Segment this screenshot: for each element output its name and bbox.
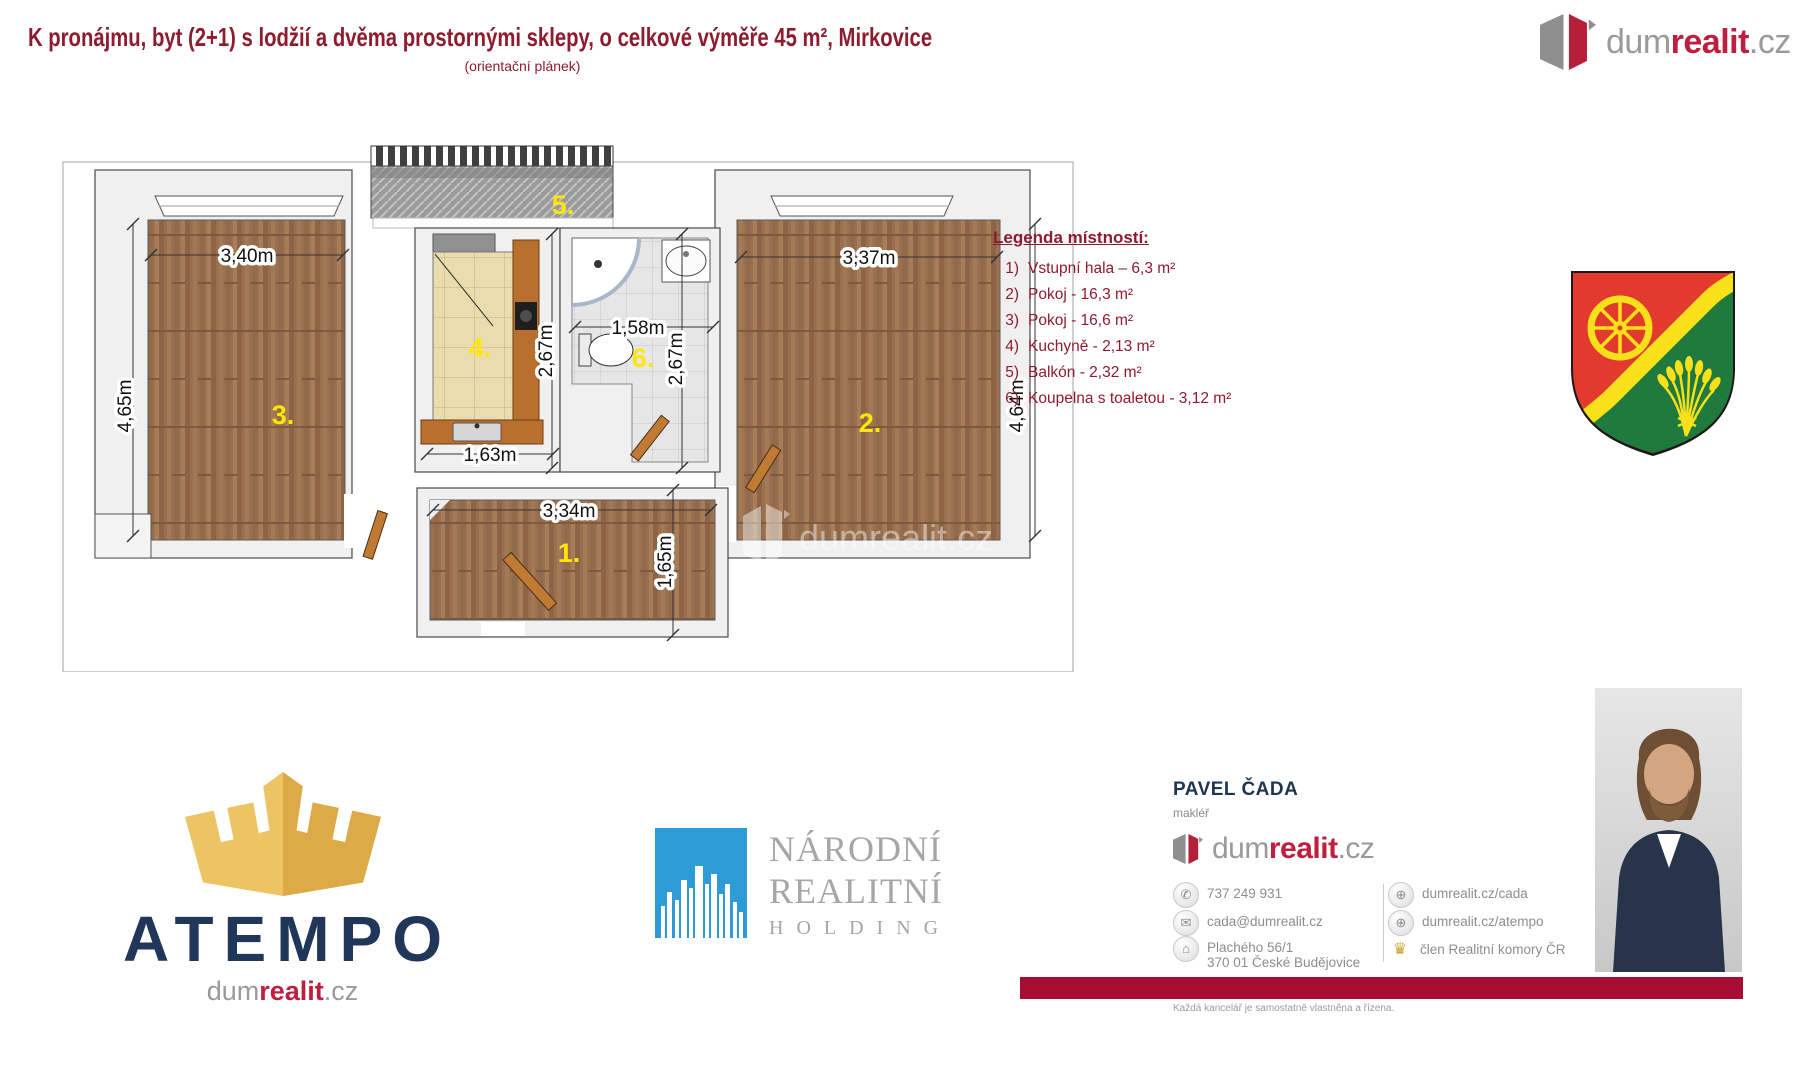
legend-item-6: 6)Koupelna s toaletou - 3,12 m² bbox=[993, 390, 1231, 408]
legend: Legenda místností: 1)Vstupní hala – 6,3 … bbox=[993, 228, 1231, 416]
contact-email[interactable]: ✉ cada@dumrealit.cz bbox=[1173, 910, 1323, 936]
floor-plan: 3,40m 4,65m 3,37m 4,64m bbox=[55, 138, 1075, 672]
dim-room3-width: 3,40m bbox=[221, 246, 274, 267]
page-subtitle: (orientační plánek) bbox=[0, 58, 1045, 74]
room3-floor bbox=[148, 220, 345, 540]
contact-web-profile[interactable]: ⊕ dumrealit.cz/cada bbox=[1388, 882, 1528, 908]
room-label-bathroom: 6. bbox=[632, 343, 655, 373]
mirkovice-coat-of-arms bbox=[1568, 268, 1738, 458]
contact-web-office[interactable]: ⊕ dumrealit.cz/atempo bbox=[1388, 910, 1544, 936]
atempo-wordmark: ATEMPO bbox=[100, 902, 475, 976]
room-3: 3,40m 4,65m bbox=[95, 170, 353, 558]
room3-wall-step bbox=[95, 514, 151, 558]
entrance-hall: 3,34m 1,65m bbox=[363, 484, 728, 641]
contact-divider bbox=[1383, 884, 1384, 962]
legend-item-5: 5)Balkón - 2,32 m² bbox=[993, 364, 1231, 382]
email-icon: ✉ bbox=[1173, 910, 1199, 936]
balcony bbox=[371, 146, 613, 228]
face bbox=[1644, 744, 1694, 804]
dim-kitchen-height: 2,67m bbox=[536, 325, 557, 378]
narodni-wordmark: NÁRODNÍ REALITNÍ HOLDING bbox=[769, 828, 951, 940]
legend-item-2: 2)Pokoj - 16,3 m² bbox=[993, 286, 1231, 304]
realitni-komora-icon: ♛ bbox=[1388, 938, 1412, 962]
agent-name: PAVEL ČADA bbox=[1173, 779, 1298, 801]
balcony-railing bbox=[371, 146, 613, 166]
dim-bathroom-width: 1,58m bbox=[612, 318, 665, 339]
dumrealit-box-icon bbox=[1540, 12, 1596, 72]
crown-icon bbox=[176, 770, 390, 898]
dim-room2-width: 3,37m bbox=[843, 248, 896, 269]
atempo-logo: ATEMPO dumrealit.cz bbox=[90, 770, 475, 1007]
fineprint: Každá kancelář je samostatně vlastněna a… bbox=[1173, 1003, 1394, 1014]
watermark-text: dumrealit.cz bbox=[799, 517, 993, 558]
narodni-realitni-logo: NÁRODNÍ REALITNÍ HOLDING bbox=[655, 828, 951, 940]
room-label-room3: 3. bbox=[272, 400, 295, 430]
dumrealit-wordmark: dumrealit.cz bbox=[1606, 23, 1791, 62]
legend-item-4: 4)Kuchyně - 2,13 m² bbox=[993, 338, 1231, 356]
balcony-door-wall bbox=[373, 218, 613, 228]
room-label-balcony: 5. bbox=[552, 190, 575, 220]
city-skyline-icon bbox=[655, 828, 747, 938]
dim-kitchen-width: 1,63m bbox=[464, 445, 517, 466]
contact-phone: ✆ 737 249 931 bbox=[1173, 882, 1282, 908]
agent-role: makléř bbox=[1173, 806, 1209, 820]
contact-member: ♛ člen Realitní komory ČR bbox=[1388, 938, 1566, 962]
agent-photo bbox=[1595, 688, 1742, 972]
dumrealit-box-icon bbox=[1173, 827, 1203, 871]
atempo-dumrealit-wordmark: dumrealit.cz bbox=[90, 976, 475, 1007]
dim-bathroom-height: 2,67m bbox=[666, 333, 687, 386]
dim-room3-height: 4,65m bbox=[115, 380, 136, 433]
location-icon: ⌂ bbox=[1173, 936, 1199, 962]
dim-hall-height: 1,65m bbox=[655, 536, 676, 589]
washbasin bbox=[666, 246, 706, 276]
room3-door-opening bbox=[344, 494, 353, 548]
legend-item-3: 3)Pokoj - 16,6 m² bbox=[993, 312, 1231, 330]
globe-icon: ⊕ bbox=[1388, 910, 1414, 936]
phone-icon: ✆ bbox=[1173, 882, 1199, 908]
page-title: K pronájmu, byt (2+1) s lodžií a dvěma p… bbox=[28, 22, 932, 53]
agent-dumrealit-logo: dumrealit.cz bbox=[1173, 827, 1374, 871]
room-label-kitchen: 4. bbox=[469, 333, 492, 363]
brand-red-bar bbox=[1020, 977, 1743, 999]
room-label-room2: 2. bbox=[859, 408, 882, 438]
kitchen-appliance bbox=[433, 234, 495, 252]
contact-address: ⌂ Plachého 56/1370 01 České Budějovice bbox=[1173, 936, 1360, 970]
legend-heading: Legenda místností: bbox=[993, 228, 1231, 248]
dim-hall-width: 3,34m bbox=[543, 501, 596, 522]
wagon-wheel bbox=[1591, 299, 1649, 357]
room-label-hall: 1. bbox=[558, 538, 581, 568]
web-icon: ⊕ bbox=[1388, 882, 1414, 908]
hall-entry-opening bbox=[481, 622, 525, 636]
legend-item-1: 1)Vstupní hala – 6,3 m² bbox=[993, 260, 1231, 278]
dumrealit-logo: dumrealit.cz bbox=[1540, 12, 1791, 72]
